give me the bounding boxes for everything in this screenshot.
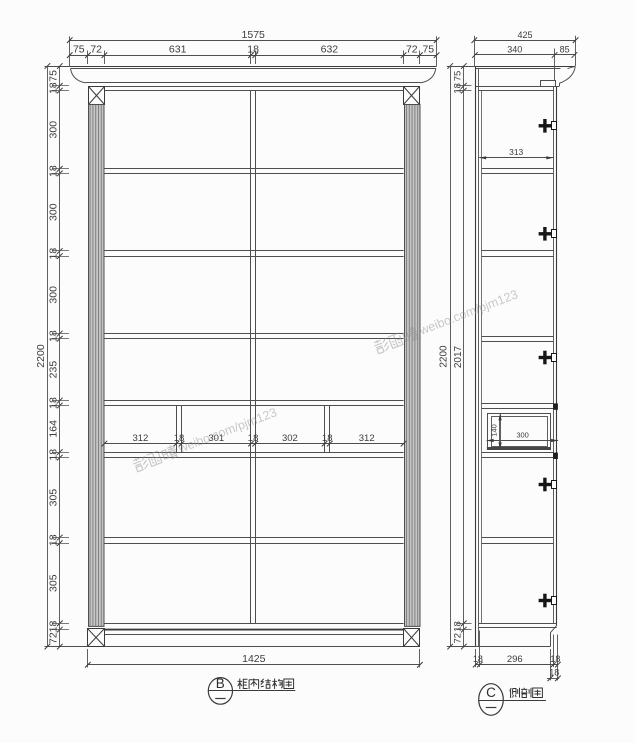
svg-text:18: 18 bbox=[247, 44, 259, 56]
svg-text:weibo.com/pjm123: weibo.com/pjm123 bbox=[417, 287, 520, 338]
svg-text:313: 313 bbox=[509, 147, 523, 157]
svg-text:18: 18 bbox=[48, 397, 60, 409]
svg-text:305: 305 bbox=[48, 489, 60, 507]
svg-text:296: 296 bbox=[507, 654, 523, 665]
svg-text:302: 302 bbox=[282, 433, 298, 444]
svg-text:75: 75 bbox=[73, 44, 85, 56]
svg-text:340: 340 bbox=[507, 45, 522, 55]
svg-text:140: 140 bbox=[489, 424, 498, 437]
svg-text:235: 235 bbox=[48, 361, 60, 379]
svg-text:18: 18 bbox=[48, 330, 60, 342]
svg-text:18: 18 bbox=[48, 534, 60, 546]
svg-text:300: 300 bbox=[48, 286, 60, 304]
svg-text:300: 300 bbox=[48, 203, 60, 221]
svg-text:72: 72 bbox=[452, 633, 463, 644]
svg-text:18: 18 bbox=[550, 654, 560, 664]
svg-text:305: 305 bbox=[48, 574, 60, 592]
svg-text:312: 312 bbox=[132, 433, 148, 444]
svg-text:75: 75 bbox=[422, 44, 434, 56]
svg-text:2017: 2017 bbox=[453, 345, 464, 368]
svg-text:75: 75 bbox=[48, 70, 60, 82]
svg-text:300: 300 bbox=[516, 431, 529, 440]
svg-text:1575: 1575 bbox=[242, 29, 266, 41]
svg-text:300: 300 bbox=[48, 121, 60, 139]
svg-text:72: 72 bbox=[406, 44, 418, 56]
svg-text:631: 631 bbox=[169, 44, 187, 56]
svg-text:1425: 1425 bbox=[242, 653, 266, 665]
svg-text:weibo.com/pjm123: weibo.com/pjm123 bbox=[176, 405, 279, 456]
svg-text:72: 72 bbox=[48, 632, 60, 644]
svg-text:18: 18 bbox=[248, 433, 259, 444]
svg-text:2200: 2200 bbox=[439, 345, 450, 368]
svg-text:632: 632 bbox=[321, 44, 339, 56]
svg-text:18: 18 bbox=[48, 82, 60, 94]
svg-text:18: 18 bbox=[48, 621, 60, 633]
svg-text:72: 72 bbox=[90, 44, 102, 56]
svg-text:18: 18 bbox=[473, 654, 483, 664]
svg-text:18: 18 bbox=[48, 449, 60, 461]
svg-text:18: 18 bbox=[452, 621, 463, 632]
svg-text:18: 18 bbox=[48, 165, 60, 177]
svg-text:2200: 2200 bbox=[35, 344, 47, 368]
svg-text:425: 425 bbox=[517, 30, 532, 40]
svg-text:312: 312 bbox=[359, 433, 375, 444]
svg-text:B: B bbox=[216, 676, 225, 691]
svg-text:85: 85 bbox=[560, 45, 570, 55]
svg-text:75: 75 bbox=[452, 71, 463, 82]
svg-text:C: C bbox=[486, 685, 496, 700]
svg-text:164: 164 bbox=[48, 420, 60, 438]
svg-text:18: 18 bbox=[48, 248, 60, 260]
svg-text:18: 18 bbox=[452, 83, 463, 94]
svg-text:18: 18 bbox=[549, 668, 559, 678]
svg-text:18: 18 bbox=[322, 433, 333, 444]
